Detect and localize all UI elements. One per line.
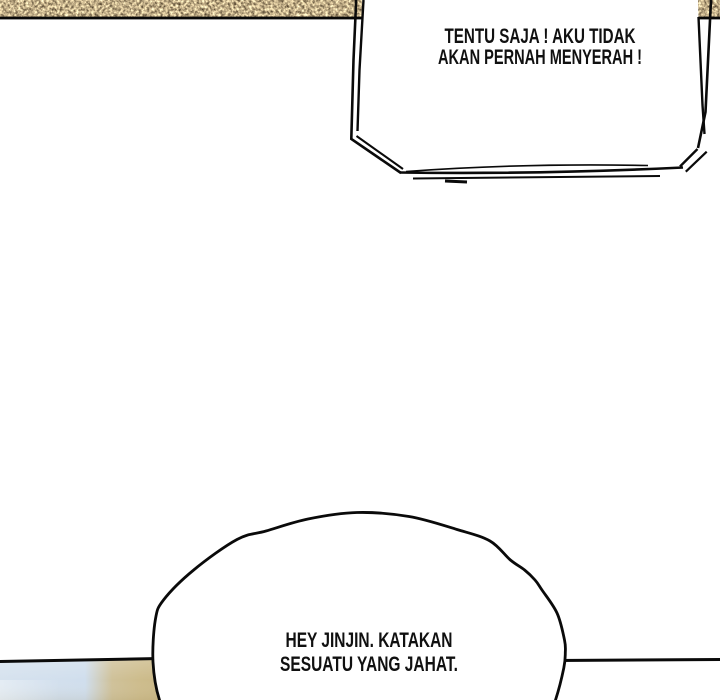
svg-text:HEY JINJIN. KATAKAN: HEY JINJIN. KATAKAN xyxy=(286,628,453,652)
svg-text:SESUATU YANG JAHAT.: SESUATU YANG JAHAT. xyxy=(280,652,458,676)
svg-text:AKAN PERNAH MENYERAH !: AKAN PERNAH MENYERAH ! xyxy=(438,45,642,69)
